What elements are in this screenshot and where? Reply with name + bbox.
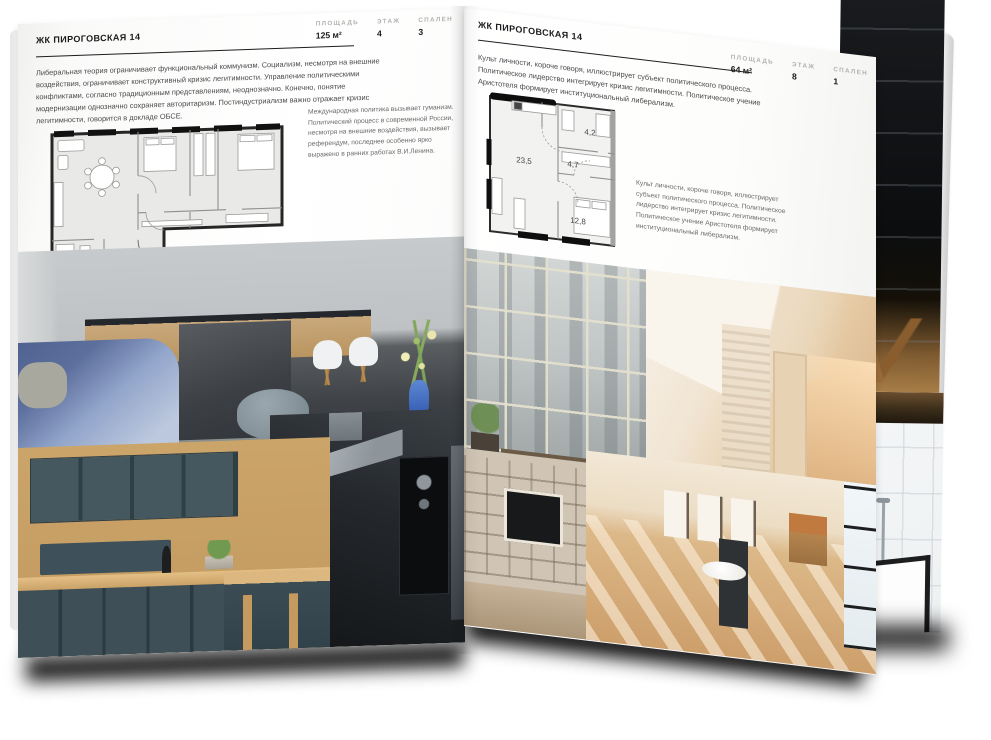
- faucet-detail: [876, 497, 890, 502]
- note-paragraph: Международная политика вызывает гуманизм…: [308, 103, 458, 162]
- stat-floor: ЭТАЖ 4: [377, 18, 400, 39]
- black-chair-detail: [719, 538, 748, 628]
- white-chair-detail: [313, 340, 342, 370]
- stat-value: 4: [377, 28, 400, 39]
- white-chair-detail: [349, 336, 378, 366]
- stat-label: ЭТАЖ: [792, 61, 815, 71]
- room-area-label: 23,5: [516, 155, 532, 166]
- room-area-label: 12,8: [570, 216, 586, 227]
- stat-label: СПАЛЕН: [833, 66, 868, 77]
- photo-collage-right: [464, 248, 876, 675]
- photo-collage-left: [18, 236, 465, 658]
- apartment-stats: ПЛОЩАДЬ 125 м² ЭТАЖ 4 СПАЛЕН 3: [316, 16, 453, 41]
- room-area-label: 4,2: [584, 127, 596, 137]
- left-page: ЖК ПИРОГОВСКАЯ 14 ПЛОЩАДЬ 125 м² ЭТАЖ 4 …: [18, 8, 465, 658]
- lower-cabinets-detail: [18, 583, 243, 658]
- page-title: ЖК ПИРОГОВСКАЯ 14: [36, 32, 140, 46]
- note-paragraph: Культ личности, короче говоря, иллюстрир…: [636, 179, 788, 251]
- bar-stools-detail: [227, 593, 327, 651]
- door-detail: [773, 350, 808, 490]
- bottle-detail: [162, 546, 171, 576]
- teal-kitchen-photo: [18, 437, 330, 658]
- hood-duct-detail: [329, 412, 362, 441]
- floor-plan-1-bedroom: 23,5 4,7 4,2 12,8: [478, 80, 628, 263]
- stat-floor: ЭТАЖ 8: [792, 61, 815, 84]
- room-area-label: 4,7: [567, 159, 579, 169]
- stat-area: ПЛОЩАДЬ 64 м²: [731, 54, 774, 79]
- stat-label: ПЛОЩАДЬ: [316, 19, 359, 28]
- brochure-spread-mockup: ЖК ПИРОГОВСКАЯ 14 ПЛОЩАДЬ 125 м² ЭТАЖ 4 …: [0, 0, 991, 740]
- stat-value: 64 м²: [731, 64, 774, 79]
- black-frame-window-detail: [844, 481, 876, 651]
- stat-value: 1: [833, 76, 868, 90]
- stat-label: СПАЛЕН: [418, 16, 453, 24]
- backsplash-detail: [40, 539, 171, 575]
- chair-legs-detail: [349, 363, 378, 383]
- stat-label: ЭТАЖ: [377, 18, 400, 26]
- header-rule: [36, 45, 354, 57]
- page-title: ЖК ПИРОГОВСКАЯ 14: [478, 20, 582, 42]
- floor-plan-svg: 23,5 4,7 4,2 12,8: [478, 80, 628, 263]
- party-wall: [611, 110, 616, 246]
- stat-value: 8: [792, 71, 815, 84]
- stat-bedrooms: СПАЛЕН 1: [833, 66, 868, 90]
- herb-plant-detail: [205, 539, 233, 569]
- stat-bedrooms: СПАЛЕН 3: [418, 16, 453, 37]
- chair-legs-detail: [313, 366, 342, 386]
- pillow-detail: [18, 362, 67, 409]
- fridge-detail: [451, 446, 465, 620]
- stat-value: 3: [418, 26, 453, 37]
- tv-detail: [504, 488, 563, 548]
- upper-cabinets-detail: [30, 451, 238, 523]
- stat-value: 125 м²: [316, 29, 359, 41]
- shower-fixture-detail: [881, 502, 885, 560]
- sunlit-room-photo: [586, 451, 876, 675]
- wall-oven-detail: [399, 456, 450, 595]
- plant-detail: [471, 401, 499, 453]
- wood-armchair-detail: [789, 513, 827, 567]
- right-page: ЖК ПИРОГОВСКАЯ 14 ПЛОЩАДЬ 64 м² ЭТАЖ 8 С…: [464, 8, 876, 675]
- stat-area: ПЛОЩАДЬ 125 м²: [316, 19, 359, 41]
